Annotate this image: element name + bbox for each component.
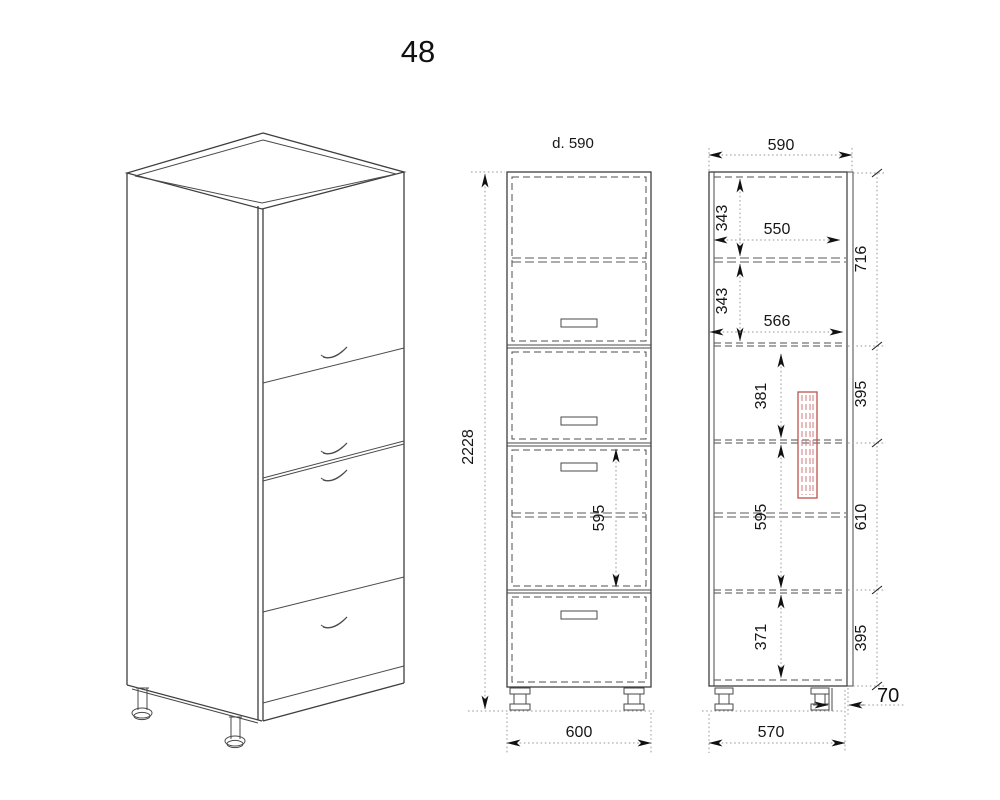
front-elevation-view: d. 590: [460, 135, 654, 753]
dim-bottom-gap-label: 371: [753, 624, 770, 651]
dim-rail-gap-label: 381: [753, 383, 770, 410]
technical-drawing-page: 48: [0, 0, 1000, 800]
iso-leg-front-left: [132, 688, 152, 720]
dim-side-drawer-label: 595: [753, 504, 770, 531]
dim-inner-depth-566: 566: [710, 313, 843, 332]
dim-second-shelf-gap-343: 343: [714, 264, 740, 341]
dim-bottom-gap-371: 371: [753, 595, 781, 678]
front-drawer-2-handle: [561, 463, 597, 471]
iso-side-panel: [127, 173, 263, 723]
front-carcass-outline: [507, 172, 651, 687]
dim-overall-depth-label: 590: [768, 137, 795, 154]
dim-overall-height-2228: 2228: [460, 172, 505, 709]
side-shelf-lines: [714, 177, 846, 680]
dim-top-shelf-gap-343: 343: [714, 179, 740, 256]
page-title: 48: [401, 34, 435, 69]
side-legs-plinth: [702, 688, 845, 711]
dim-overall-height-label: 2228: [460, 429, 477, 465]
dim-inner-depth-mid-label: 566: [764, 313, 791, 330]
dim-plinth-recess-label: 70: [877, 685, 899, 707]
cabinet-drawing: 48: [0, 0, 1000, 800]
dim-second-shelf-gap-label: 343: [714, 288, 731, 315]
iso-drawer-handle-2: [321, 470, 347, 481]
dim-front-height-716: 716: [853, 246, 870, 273]
dim-front-height-395a: 395: [853, 381, 870, 408]
iso-leg-front-corner: [225, 717, 245, 748]
dim-rail-gap-381: 381: [753, 354, 781, 438]
dim-depth-note: d. 590: [552, 135, 594, 152]
dim-middle-drawer-595: 595: [591, 449, 616, 587]
side-section-view: 590 343 550 343 566 381 595 371: [702, 137, 905, 753]
dim-top-shelf-gap-label: 343: [714, 205, 731, 232]
isometric-view: [127, 133, 404, 748]
iso-drawer-handle-1: [321, 443, 347, 454]
front-drawer-1: [507, 352, 651, 446]
dim-overall-width-600: 600: [507, 713, 651, 753]
iso-door-handle: [321, 347, 347, 358]
dim-middle-drawer-label: 595: [591, 505, 608, 532]
front-drawer-1-handle: [561, 417, 597, 425]
dim-front-heights-chain: 716 395 610 395: [848, 169, 886, 690]
front-door-outline: [507, 177, 651, 348]
dim-inner-depth-550: 550: [714, 221, 840, 240]
front-legs: [468, 688, 654, 711]
dim-overall-depth-590: 590: [709, 137, 852, 172]
highlighted-component: [798, 392, 817, 498]
dim-plinth-recess-70: 70: [813, 685, 905, 716]
dim-overall-width-label: 600: [566, 724, 593, 741]
dim-front-height-395b: 395: [853, 625, 870, 652]
front-drawer-3-handle: [561, 611, 597, 619]
dim-inner-depth-top-label: 550: [764, 221, 791, 238]
dim-side-drawer-595: 595: [753, 445, 781, 588]
dim-base-depth-label: 570: [758, 724, 785, 741]
dim-front-height-610: 610: [853, 504, 870, 531]
iso-front-panel: [263, 172, 404, 721]
front-door-handle: [561, 319, 597, 327]
iso-drawer-handle-3: [321, 617, 347, 628]
front-drawer-3: [512, 597, 646, 682]
iso-top-panel: [127, 133, 404, 209]
front-drawer-2: [507, 450, 651, 593]
